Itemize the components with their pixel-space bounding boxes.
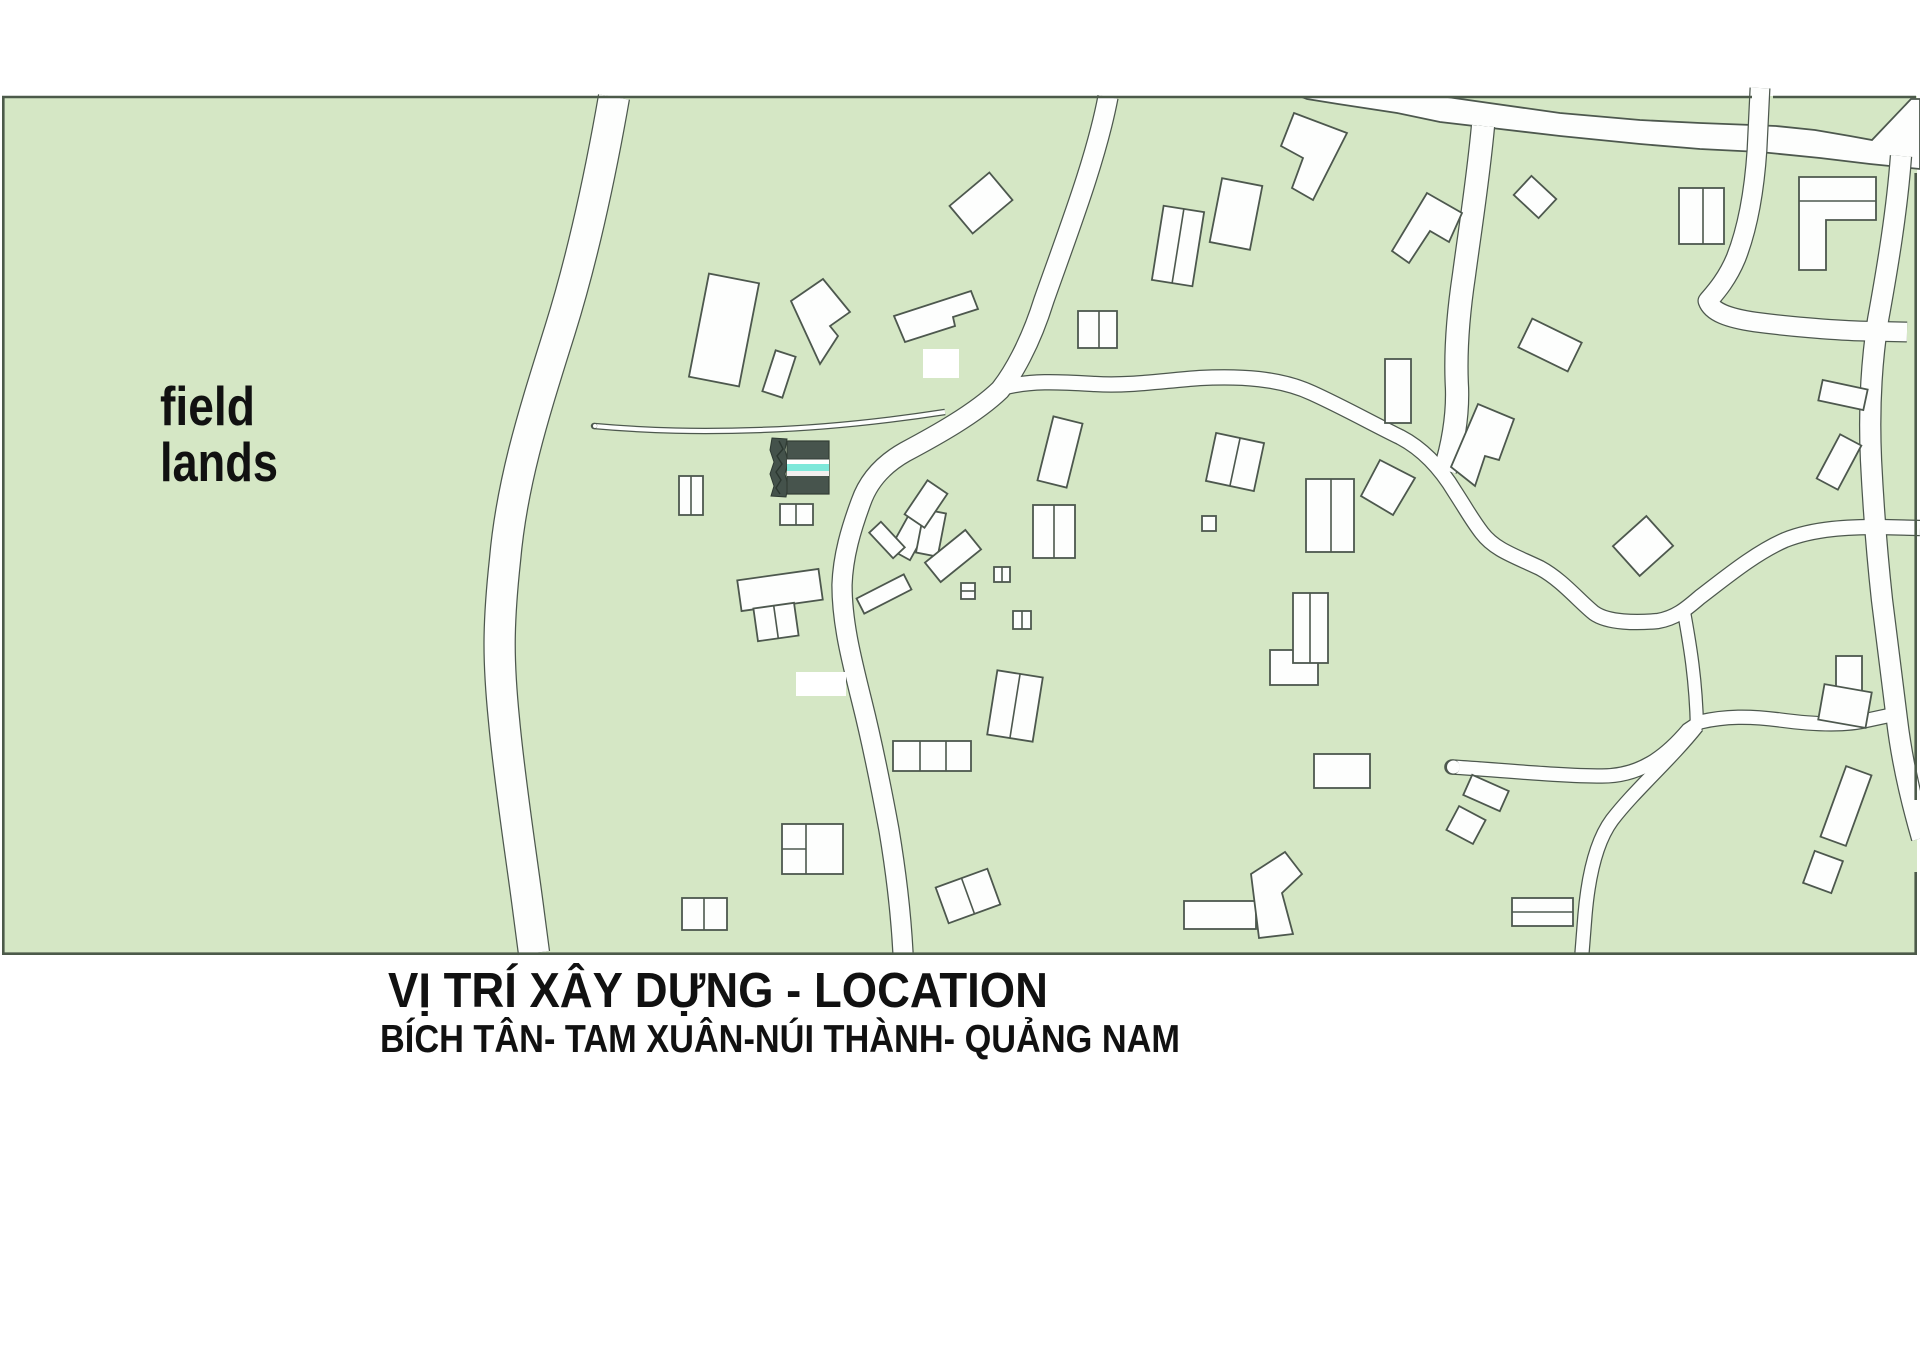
svg-text:field: field	[160, 375, 255, 437]
svg-text:BÍCH TÂN- TAM XUÂN-NÚI THÀNH-: BÍCH TÂN- TAM XUÂN-NÚI THÀNH- QUẢNG NAM	[380, 1017, 1180, 1061]
svg-text:lands: lands	[160, 431, 278, 493]
svg-text:VỊ TRÍ XÂY DỰNG - LOCATION: VỊ TRÍ XÂY DỰNG - LOCATION	[388, 963, 1048, 1018]
